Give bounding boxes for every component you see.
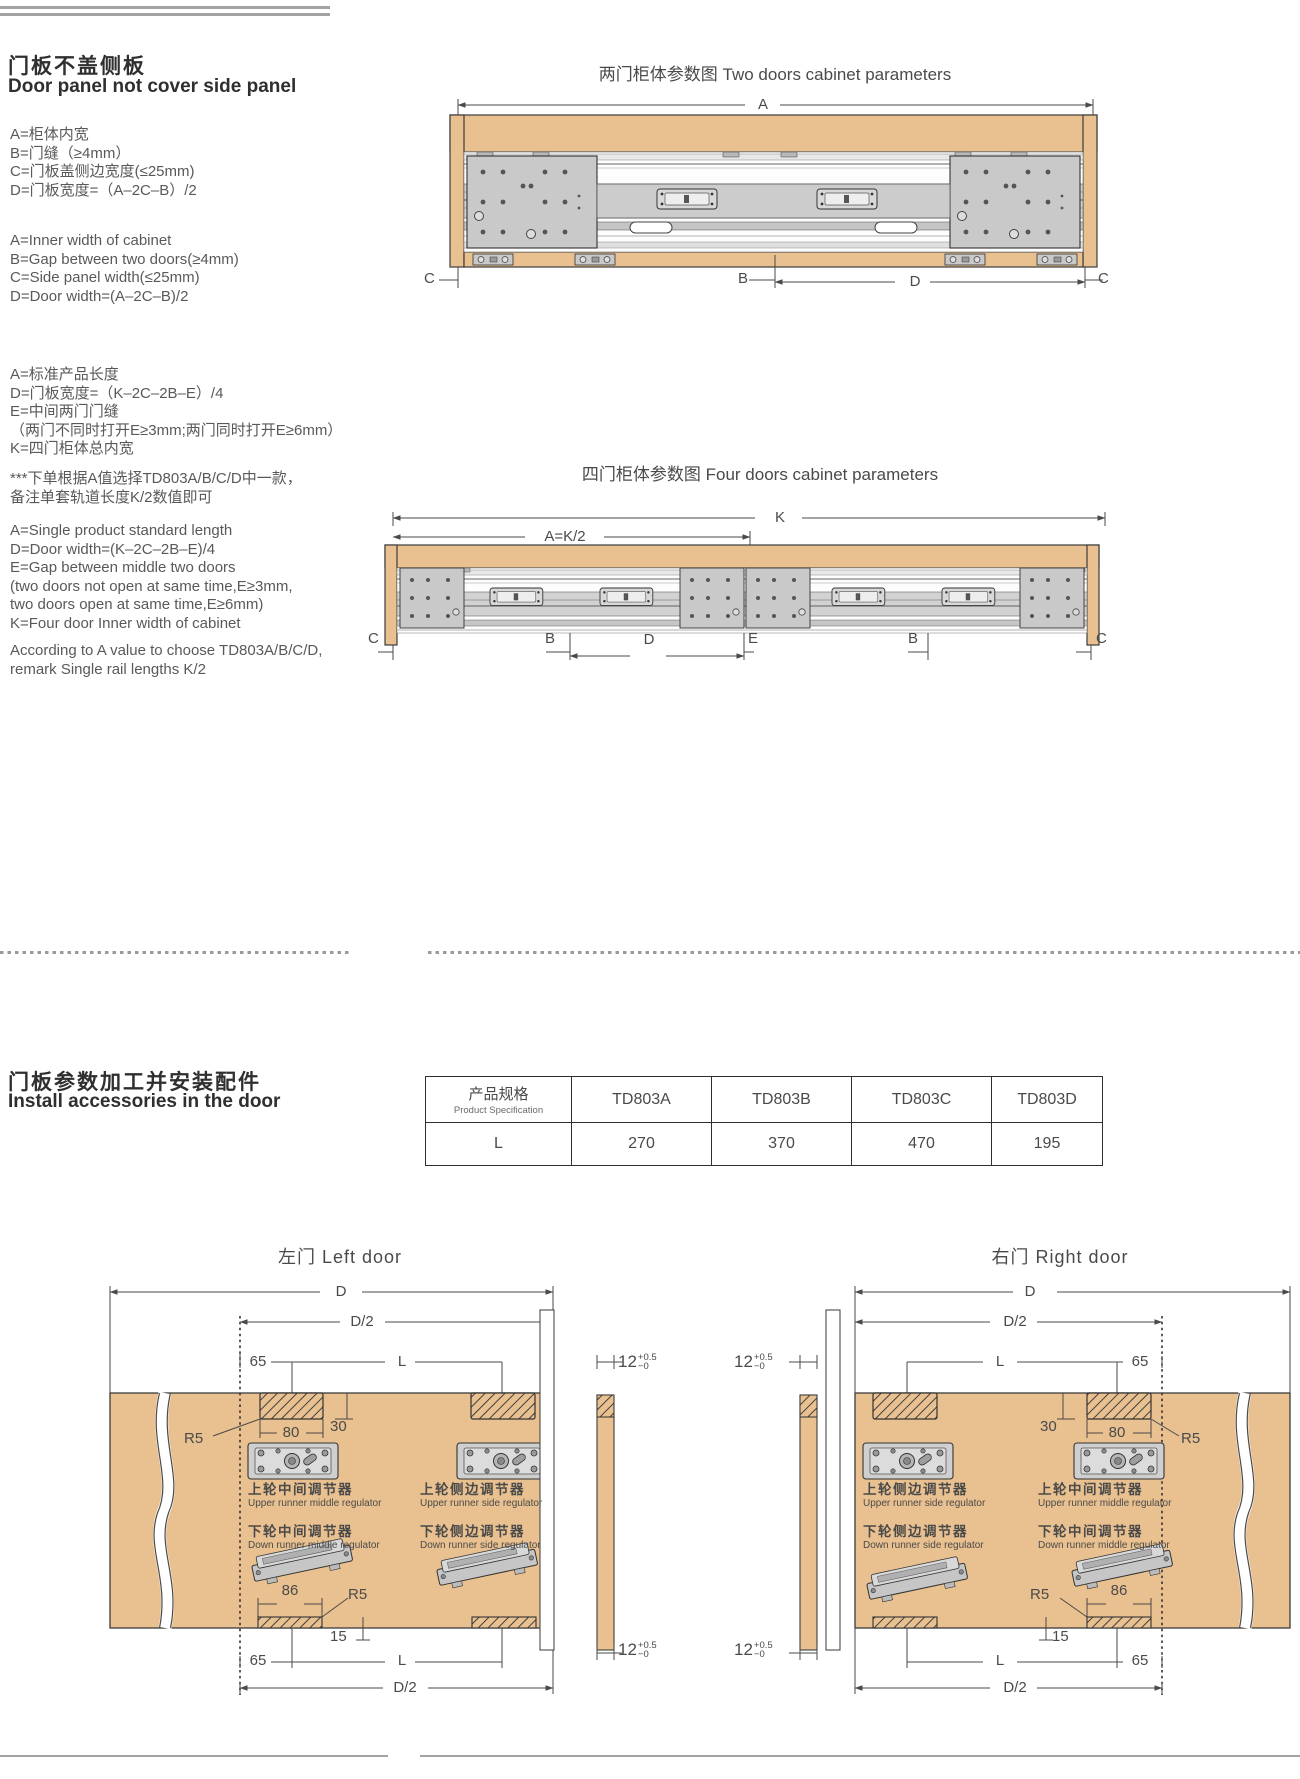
dim-K-label: K <box>765 509 795 526</box>
dim-30: 30 <box>1040 1418 1057 1435</box>
params-four-door-cn: A=标准产品长度 D=门板宽度=（K–2C–2B–E）/4 E=中间两门门缝 （… <box>10 366 342 459</box>
dim-B-label: B <box>738 270 748 287</box>
header-model: TD803C <box>852 1077 992 1123</box>
table-data-row: L 270 370 470 195 <box>426 1123 1103 1166</box>
dim-C-left-label: C <box>368 630 379 647</box>
groove-tolerance-label: 12 +0.5−0 <box>734 1640 773 1660</box>
section1-title-en: Door panel not cover side panel <box>8 76 296 98</box>
left-door-dims <box>110 1286 553 1393</box>
dim-C-left-label: C <box>424 270 435 287</box>
upper-middle-regulator-label: 上轮中间调节器 Upper runner middle regulator <box>248 1478 381 1509</box>
cabinet-right-board <box>1083 115 1097 267</box>
length-value: 370 <box>712 1123 852 1166</box>
order-note-en: According to A value to choose TD803A/B/… <box>10 642 322 679</box>
finger-slot <box>875 222 917 233</box>
groove-tolerance-label: 12 +0.5−0 <box>618 1352 657 1372</box>
dim-65: 65 <box>243 1353 273 1370</box>
upper-middle-regulator <box>1074 1443 1164 1479</box>
param-line: remark Single rail lengths K/2 <box>10 661 322 680</box>
param-line: A=Single product standard length <box>10 522 293 541</box>
header-cn: 产品规格 <box>426 1083 571 1104</box>
top-side-cutout <box>873 1393 937 1419</box>
header-model: TD803D <box>992 1077 1103 1123</box>
dim-B-left-label: B <box>545 630 555 647</box>
dim-D-label: D <box>900 273 930 290</box>
param-line: D=门板宽度=（K–2C–2B–E）/4 <box>10 385 342 404</box>
dim-D-label: D <box>634 631 664 648</box>
bottom-side-cutout <box>873 1617 937 1628</box>
param-line: D=Door width=(K–2C–2B–E)/4 <box>10 541 293 560</box>
left-mount-plate <box>467 156 597 248</box>
spec-table: 产品规格 Product Specification TD803A TD803B… <box>425 1076 1103 1166</box>
section2-title-en: Install accessories in the door <box>8 1091 280 1113</box>
edge-strip-plain <box>826 1310 840 1650</box>
latch-device <box>817 189 877 209</box>
four-doors-diagram <box>362 500 1122 660</box>
latch-device <box>832 588 885 606</box>
upper-middle-regulator <box>248 1443 338 1479</box>
table-header-row: 产品规格 Product Specification TD803A TD803B… <box>426 1077 1103 1123</box>
dim-65: 65 <box>1125 1652 1155 1669</box>
dim-E-label: E <box>748 630 758 647</box>
down-middle-regulator-label: 下轮中间调节器 Down runner middle regulator <box>1038 1520 1170 1551</box>
edge-strip-grooved <box>800 1395 817 1650</box>
cabinet-top-board <box>385 545 1099 568</box>
mount-plate <box>1020 568 1084 628</box>
param-line: According to A value to choose TD803A/B/… <box>10 642 322 661</box>
left-door-title: 左门 Left door <box>240 1243 440 1269</box>
catalog-page: 门板不盖侧板 Door panel not cover side panel A… <box>0 0 1300 1779</box>
dim-L: L <box>387 1353 417 1370</box>
param-line: A=柜体内宽 <box>10 126 197 145</box>
bottom-bracket <box>945 254 985 265</box>
right-door-panel <box>855 1393 1290 1628</box>
upper-middle-regulator-label: 上轮中间调节器 Upper runner middle regulator <box>1038 1478 1171 1509</box>
param-line: B=门缝（≥4mm） <box>10 145 197 164</box>
center-rail <box>597 184 950 218</box>
dim-65: 65 <box>1125 1353 1155 1370</box>
finger-slot <box>630 222 672 233</box>
groove-tolerance-label: 12 +0.5−0 <box>618 1640 657 1660</box>
param-line: D=Door width=(A–2C–B)/2 <box>10 288 239 307</box>
upper-side-regulator <box>863 1443 953 1479</box>
bottom-middle-cutout <box>258 1617 322 1628</box>
dim-15: 15 <box>330 1628 347 1645</box>
down-side-regulator-label: 下轮侧边调节器 Down runner side regulator <box>863 1520 984 1551</box>
dim-A-label: A <box>748 96 778 113</box>
param-line: A=Inner width of cabinet <box>10 232 239 251</box>
dim-65: 65 <box>243 1652 273 1669</box>
upper-side-regulator <box>457 1443 547 1479</box>
dim-L: L <box>387 1652 417 1669</box>
dashed-divider-right <box>428 951 1300 954</box>
dim-86: 86 <box>275 1582 305 1599</box>
bottom-bracket <box>1037 254 1077 265</box>
latch-device <box>600 588 653 606</box>
dim-80: 80 <box>276 1424 306 1441</box>
param-line: （两门不同时打开E≥3mm;两门同时打开E≥6mm） <box>10 422 342 441</box>
dim-L: L <box>985 1652 1015 1669</box>
dim-R5: R5 <box>348 1586 367 1603</box>
dim-L: L <box>985 1353 1015 1370</box>
bottom-bracket <box>473 254 513 265</box>
param-line: E=Gap between middle two doors <box>10 559 293 578</box>
latch-device <box>942 588 995 606</box>
dashed-divider-left <box>0 951 352 954</box>
latch-device <box>490 588 543 606</box>
header-product-spec: 产品规格 Product Specification <box>426 1077 572 1123</box>
length-value: 470 <box>852 1123 992 1166</box>
params-two-door-cn: A=柜体内宽 B=门缝（≥4mm） C=门板盖侧边宽度(≤25mm) D=门板宽… <box>10 126 197 200</box>
mount-plate <box>680 568 744 628</box>
order-note-cn: ***下单根据A值选择TD803A/B/C/D中一款， 备注单套轨道长度K/2数… <box>10 470 302 507</box>
top-middle-cutout <box>260 1393 323 1419</box>
param-line: (two doors not open at same time,E≥3mm, <box>10 578 293 597</box>
cabinet-left-board <box>450 115 464 267</box>
upper-side-regulator-label: 上轮侧边调节器 Upper runner side regulator <box>863 1478 985 1509</box>
top-rule-2 <box>0 13 330 16</box>
length-value: 270 <box>572 1123 712 1166</box>
param-line: two doors open at same time,E≥6mm) <box>10 596 293 615</box>
bottom-rule-right <box>420 1755 1300 1757</box>
dim-D2: D/2 <box>380 1679 430 1696</box>
right-door-title: 右门 Right door <box>960 1243 1160 1269</box>
header-model: TD803A <box>572 1077 712 1123</box>
dim-R5: R5 <box>1181 1430 1200 1447</box>
dim-D2: D/2 <box>990 1313 1040 1330</box>
four-doors-diagram-title: 四门柜体参数图 Four doors cabinet parameters <box>480 460 1040 485</box>
mount-plate <box>400 568 464 628</box>
edge-strip-grooved <box>597 1395 614 1650</box>
dim-D: D <box>326 1283 356 1300</box>
top-rule-1 <box>0 6 330 9</box>
params-two-door-en: A=Inner width of cabinet B=Gap between t… <box>10 232 239 306</box>
dim-B-right-label: B <box>908 630 918 647</box>
bottom-middle-cutout <box>1087 1617 1151 1628</box>
dim-15: 15 <box>1052 1628 1069 1645</box>
dim-bottom-lines <box>378 633 1091 660</box>
param-line: ***下单根据A值选择TD803A/B/C/D中一款， <box>10 470 302 489</box>
param-line: A=标准产品长度 <box>10 366 342 385</box>
right-door-dims <box>855 1286 1290 1393</box>
upper-side-regulator-label: 上轮侧边调节器 Upper runner side regulator <box>420 1478 542 1509</box>
groove-tolerance-label: 12 +0.5−0 <box>734 1352 773 1372</box>
cabinet-left-board <box>385 545 397 645</box>
top-middle-cutout <box>1087 1393 1151 1419</box>
dim-C-right-label: C <box>1098 270 1109 287</box>
down-middle-regulator-label: 下轮中间调节器 Down runner middle regulator <box>248 1520 380 1551</box>
header-en: Product Specification <box>426 1105 571 1116</box>
row-label: L <box>426 1123 572 1166</box>
right-mount-plate <box>950 156 1080 248</box>
param-line: K=四门柜体总内宽 <box>10 440 342 459</box>
two-doors-diagram <box>425 92 1115 302</box>
dim-R5: R5 <box>1030 1586 1049 1603</box>
mount-plate <box>746 568 810 628</box>
cabinet-top-board <box>450 115 1097 152</box>
dim-30: 30 <box>330 1418 347 1435</box>
two-doors-diagram-title: 两门柜体参数图 Two doors cabinet parameters <box>520 60 1030 85</box>
header-model: TD803B <box>712 1077 852 1123</box>
param-line: D=门板宽度=（A–2C–B）/2 <box>10 182 197 201</box>
dim-A-half-label: A=K/2 <box>530 528 600 545</box>
param-line: 备注单套轨道长度K/2数值即可 <box>10 489 302 508</box>
down-side-regulator-label: 下轮侧边调节器 Down runner side regulator <box>420 1520 541 1551</box>
param-line: B=Gap between two doors(≥4mm) <box>10 251 239 270</box>
param-line: C=Side panel width(≤25mm) <box>10 269 239 288</box>
bottom-bracket <box>575 254 615 265</box>
params-four-door-en: A=Single product standard length D=Door … <box>10 522 293 634</box>
latch-device <box>657 189 717 209</box>
dim-86: 86 <box>1104 1582 1134 1599</box>
dim-D2: D/2 <box>990 1679 1040 1696</box>
param-line: K=Four door Inner width of cabinet <box>10 615 293 634</box>
bottom-side-cutout <box>472 1617 536 1628</box>
cabinet-bottom-board <box>464 252 1083 267</box>
dim-R5: R5 <box>184 1430 203 1447</box>
dim-80: 80 <box>1102 1424 1132 1441</box>
door-edge-profiles <box>540 1310 840 1660</box>
dim-C-right-label: C <box>1096 630 1107 647</box>
dim-D: D <box>1015 1283 1045 1300</box>
param-line: C=门板盖侧边宽度(≤25mm) <box>10 163 197 182</box>
top-side-cutout <box>471 1393 535 1419</box>
length-value: 195 <box>992 1123 1103 1166</box>
param-line: E=中间两门门缝 <box>10 403 342 422</box>
dim-D2: D/2 <box>337 1313 387 1330</box>
bottom-rule-left <box>0 1755 388 1757</box>
